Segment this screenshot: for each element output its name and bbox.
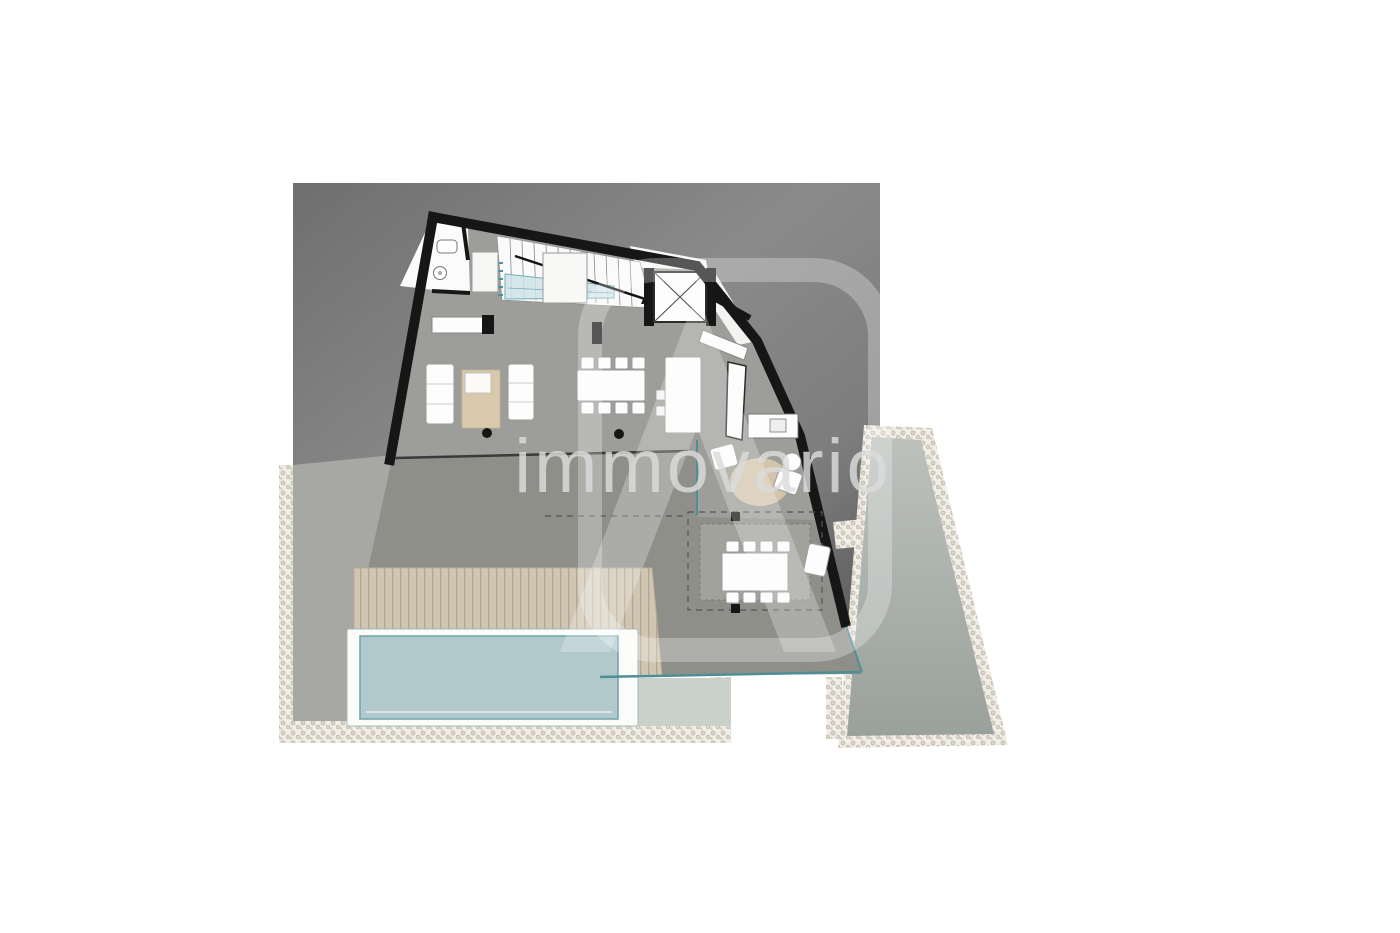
lower-terrace-strip — [637, 678, 731, 726]
bathroom-partition-bottom — [432, 291, 470, 293]
hall-sideboard — [432, 315, 494, 334]
sideboard — [432, 317, 484, 333]
coffee-table — [465, 373, 491, 393]
wardrobe — [543, 253, 587, 303]
sideboard-end-wall — [482, 315, 494, 334]
sofa-left — [426, 364, 454, 424]
gravel-border-gap-column — [826, 677, 842, 739]
sink-drain — [438, 271, 442, 275]
sofa-right — [508, 364, 534, 420]
watermark-text: immovario — [514, 424, 892, 509]
floor-plan-page: immovario — [0, 0, 1400, 933]
column — [482, 428, 492, 438]
toilet-icon — [437, 240, 457, 253]
floor-plan-canvas: immovario — [0, 0, 1400, 933]
closet — [472, 252, 498, 292]
pergola-post — [731, 604, 740, 613]
